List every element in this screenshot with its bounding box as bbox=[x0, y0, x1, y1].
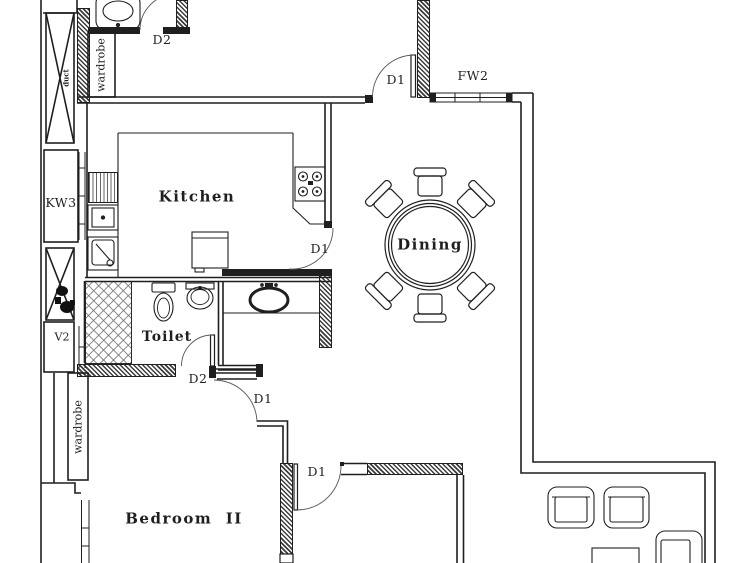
armchair-seat bbox=[555, 497, 587, 522]
wardrobe-label-bottom: wardrobe bbox=[73, 400, 84, 454]
vent-v2-box bbox=[44, 322, 74, 372]
wall-toilet-north bbox=[85, 278, 332, 282]
window-fw2-mullions bbox=[436, 93, 506, 102]
bath-sink-tap bbox=[116, 23, 119, 26]
door-leaf-toilet bbox=[211, 335, 215, 366]
tap-handle bbox=[275, 284, 278, 287]
armchair-seat bbox=[610, 497, 643, 522]
powder-basin-tap bbox=[266, 284, 273, 288]
door-threshold-hall bbox=[341, 464, 367, 475]
door-swing-corridor-d1 bbox=[214, 380, 257, 422]
wall-powder-west bbox=[219, 281, 224, 365]
door-label-d1-corridor: D1 bbox=[254, 393, 273, 406]
door-swing-bath-d2 bbox=[140, 0, 176, 30]
door-swings bbox=[140, 0, 414, 510]
wall-cap-corridor bbox=[256, 364, 263, 377]
living-furniture bbox=[548, 487, 702, 563]
duct-label: duct bbox=[63, 69, 70, 86]
sofa-seat bbox=[661, 540, 690, 563]
sofa bbox=[656, 531, 702, 563]
room-label-dining: Dining bbox=[397, 238, 463, 253]
washing-machine-mark bbox=[96, 244, 110, 260]
vent-label-v2: V2 bbox=[55, 332, 70, 343]
wall-top-corner bbox=[43, 0, 77, 13]
floor-plan: Kitchen Dining Toilet Bedroom II wardrob… bbox=[0, 0, 751, 563]
burner-centers bbox=[302, 175, 319, 193]
powder-basin bbox=[250, 288, 288, 312]
shaft-pipes bbox=[55, 286, 75, 313]
window-fw2-cap-left bbox=[430, 93, 436, 102]
wall-cap-kitchen-door bbox=[324, 221, 332, 228]
wall-kitchen-east bbox=[325, 103, 331, 221]
wall-kitchen-north bbox=[77, 97, 365, 103]
wall-nib-hall-door bbox=[340, 462, 344, 466]
fridge-foot bbox=[195, 268, 204, 272]
wall-cap-white bbox=[280, 554, 293, 563]
wall-cap-entry bbox=[365, 95, 373, 103]
basin-bowl-inner bbox=[191, 290, 209, 305]
tap-handle bbox=[261, 284, 264, 287]
window-fw2-cap-right bbox=[506, 93, 512, 102]
door-label-d1-kitchen: D1 bbox=[311, 243, 330, 256]
wall-post-toilet-door bbox=[209, 366, 216, 378]
kitchen-sink-drain bbox=[101, 216, 104, 219]
door-leaf-entry bbox=[411, 55, 416, 97]
door-label-d1-bedroom: D1 bbox=[308, 466, 327, 479]
wc-tank bbox=[152, 283, 175, 292]
door-leaf-hall bbox=[294, 464, 298, 510]
windows bbox=[79, 93, 512, 563]
basin-tap bbox=[199, 287, 202, 290]
coffee-table bbox=[592, 548, 639, 563]
room-label-kitchen: Kitchen bbox=[159, 190, 236, 205]
wc-bowl-inner bbox=[158, 298, 170, 318]
room-label-bedroom2: Bedroom II bbox=[125, 512, 242, 527]
window-kw3-glazing bbox=[79, 152, 85, 240]
railing-inner bbox=[533, 93, 715, 563]
walls bbox=[41, 0, 715, 563]
door-label-d1-entry: D1 bbox=[387, 74, 406, 87]
door-label-d2-toilet: D2 bbox=[189, 373, 208, 386]
plan-linework bbox=[0, 0, 751, 563]
window-label-fw2: FW2 bbox=[458, 70, 489, 83]
wardrobe-label-top: wardrobe bbox=[96, 38, 107, 92]
window-label-kw3: KW3 bbox=[45, 197, 76, 210]
bath-sink-bowl bbox=[103, 1, 133, 21]
wall-step-bedroom bbox=[257, 421, 288, 463]
wall-hall-east bbox=[457, 475, 464, 563]
kitchen-counter-east bbox=[293, 133, 325, 224]
room-label-toilet: Toilet bbox=[142, 330, 192, 344]
wall-powder-north bbox=[222, 269, 332, 276]
window-bedroom-glazing bbox=[82, 500, 90, 563]
wc-bowl bbox=[154, 293, 173, 321]
railing-top-joint bbox=[512, 93, 533, 102]
door-label-d2-bath: D2 bbox=[153, 34, 172, 47]
fridge bbox=[192, 232, 228, 268]
